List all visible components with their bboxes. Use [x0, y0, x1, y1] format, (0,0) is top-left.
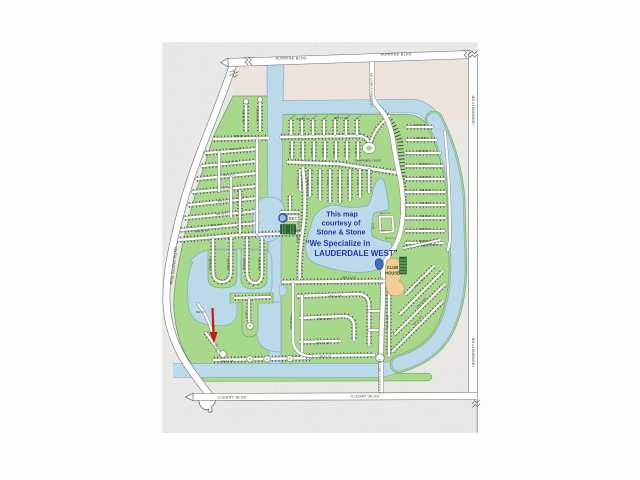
svg-text:NW 10 ST: NW 10 ST [318, 355, 332, 359]
svg-text:This map: This map [326, 210, 358, 219]
svg-text:NW 96: NW 96 [301, 147, 303, 154]
svg-text:NW 80 AVE: NW 80 AVE [386, 315, 390, 329]
svg-text:NW 12 CT: NW 12 CT [380, 231, 391, 233]
svg-text:NW 95: NW 95 [318, 178, 320, 185]
svg-text:NW 12 CT: NW 12 CT [385, 238, 396, 240]
svg-text:NW 15 CT: NW 15 CT [420, 203, 431, 205]
svg-text:NW 12 ST: NW 12 ST [195, 229, 209, 234]
svg-text:NW 15 CT: NW 15 CT [418, 151, 429, 153]
svg-text:NW 86 AVE: NW 86 AVE [289, 315, 293, 329]
svg-text:NW 12 CT: NW 12 CT [380, 213, 391, 215]
svg-text:NW 17 ST: NW 17 ST [234, 134, 248, 138]
svg-text:NW 95: NW 95 [348, 178, 350, 185]
svg-text:NW 95: NW 95 [328, 178, 330, 185]
svg-text:CLEARY BLVD: CLEARY BLVD [217, 396, 246, 400]
svg-text:NW 83 AVE: NW 83 AVE [227, 257, 230, 270]
svg-text:SUNRISE BLVD: SUNRISE BLVD [380, 52, 411, 56]
svg-text:NW 15: NW 15 [196, 310, 204, 314]
svg-text:NW 96: NW 96 [356, 147, 358, 154]
svg-text:NW 96: NW 96 [345, 147, 347, 154]
svg-text:courtesy of: courtesy of [322, 219, 361, 228]
svg-text:CLEARY BLVD: CLEARY BLVD [350, 395, 379, 399]
svg-text:NW 96: NW 96 [290, 147, 292, 154]
svg-text:UNIVERSITY DR: UNIVERSITY DR [472, 337, 476, 367]
svg-text:NW 81: NW 81 [246, 311, 248, 318]
svg-text:NW 80 WAY: NW 80 WAY [256, 108, 260, 123]
svg-text:NW 96: NW 96 [312, 147, 314, 154]
svg-text:NW 15 CT: NW 15 CT [419, 164, 430, 166]
svg-text:NW 96: NW 96 [334, 147, 336, 154]
svg-text:NW 15 CT: NW 15 CT [416, 138, 427, 140]
svg-text:LAUDERDALE WEST DR: LAUDERDALE WEST DR [370, 72, 374, 107]
svg-text:NW 15 CT: NW 15 CT [420, 216, 431, 218]
svg-text:NW 12 ST: NW 12 ST [342, 276, 356, 280]
svg-text:NW 15 CT: NW 15 CT [420, 177, 431, 179]
svg-text:NW 95: NW 95 [308, 178, 310, 185]
svg-text:NW 82 AVE: NW 82 AVE [243, 257, 246, 270]
svg-text:LAUDERDALE WEST”: LAUDERDALE WEST” [314, 249, 397, 258]
svg-text:NW 96: NW 96 [323, 147, 325, 154]
svg-text:NW 95: NW 95 [298, 178, 300, 185]
svg-text:NW 95: NW 95 [338, 178, 340, 185]
svg-text:NW 80: NW 80 [216, 344, 219, 352]
svg-text:NW 15 CT: NW 15 CT [420, 190, 431, 192]
svg-text:NW 81 AVE: NW 81 AVE [258, 257, 261, 270]
svg-text:HOUSE: HOUSE [385, 271, 400, 276]
svg-text:NW 80 DR: NW 80 DR [242, 111, 246, 124]
svg-text:NW 10 ST: NW 10 ST [221, 359, 234, 363]
svg-text:NW 15 CT: NW 15 CT [414, 125, 425, 127]
svg-text:LAUDERDALE WEST DR: LAUDERDALE WEST DR [378, 358, 382, 393]
svg-text:NW 10 PL: NW 10 PL [317, 317, 331, 321]
svg-text:NW 15 CT: NW 15 CT [420, 229, 431, 231]
svg-text:REC: REC [289, 216, 298, 221]
svg-text:“We Specialize in: “We Specialize in [306, 239, 371, 248]
svg-text:CAMPANELLI BLVD: CAMPANELLI BLVD [355, 159, 381, 163]
svg-text:NW 10 CT: NW 10 CT [316, 341, 330, 345]
svg-text:SUNRISE BLVD: SUNRISE BLVD [275, 56, 306, 60]
svg-text:NW 95: NW 95 [358, 178, 360, 185]
svg-text:NW 84 AVE: NW 84 AVE [209, 257, 212, 270]
svg-text:NW 96: NW 96 [373, 222, 375, 229]
svg-text:Stone & Stone: Stone & Stone [316, 228, 365, 237]
svg-text:CLUB: CLUB [387, 265, 399, 270]
svg-text:UNIVERSITY DR: UNIVERSITY DR [472, 95, 476, 125]
svg-text:NW 11 ST: NW 11 ST [328, 294, 341, 298]
